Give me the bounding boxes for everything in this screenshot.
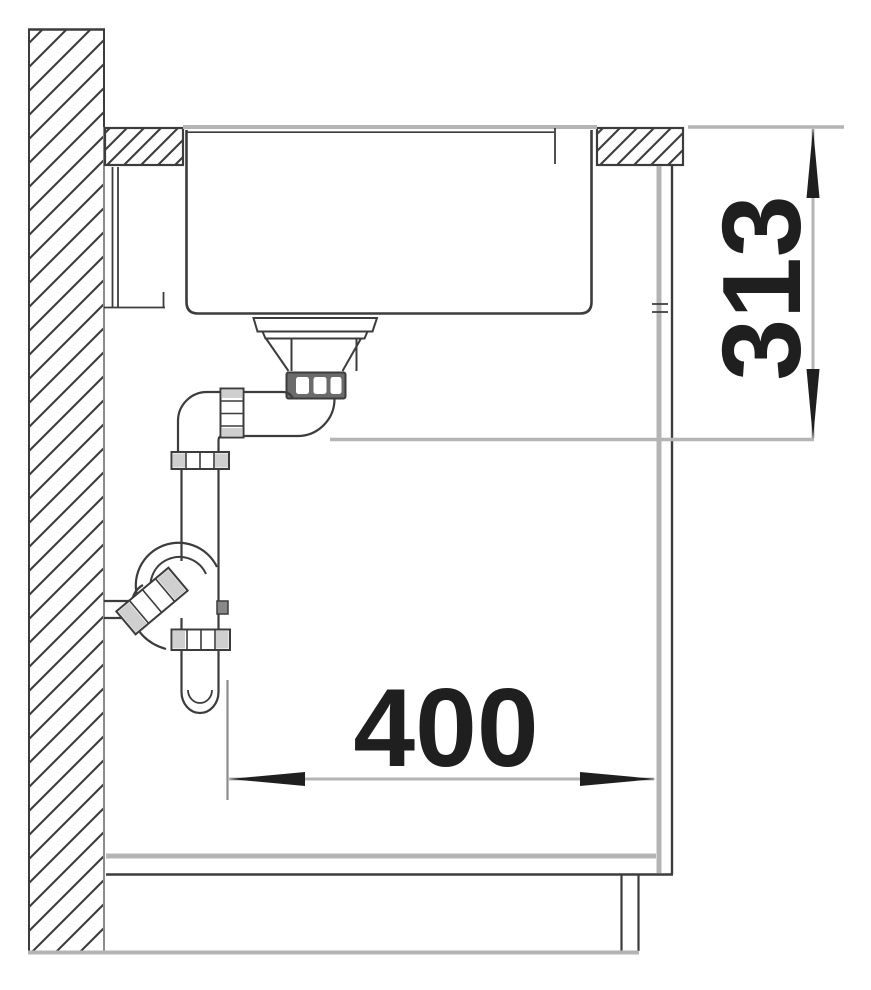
vertical-pipe-lower-nut — [172, 630, 231, 651]
dimension-height-label: 313 — [700, 195, 824, 380]
dimension-height: 313 — [330, 127, 844, 440]
countertop-left-section — [105, 128, 183, 165]
wall-hatched — [28, 29, 105, 954]
dimension-width: 400 — [228, 666, 657, 800]
vertical-pipe-upper-nut — [172, 452, 230, 469]
drain-strainer — [254, 318, 378, 399]
cabinet-side-panel — [652, 166, 672, 874]
dimension-width-label: 400 — [353, 666, 538, 790]
cabinet — [28, 166, 673, 953]
arrow-left-icon — [229, 772, 305, 786]
countertop — [105, 127, 683, 165]
horizontal-pipe-nut — [221, 389, 244, 438]
back-rail — [104, 167, 165, 308]
pipe-clip — [217, 601, 228, 614]
cabinet-bottom-panel — [106, 856, 673, 875]
countertop-right-section — [597, 128, 683, 165]
drain-tailpipe-elbow — [172, 389, 335, 631]
siphon-trap — [104, 543, 230, 713]
page: 313 400 — [0, 0, 871, 990]
sink-bowl — [187, 130, 592, 314]
cabinet-plinth — [622, 874, 639, 951]
arrow-up-icon — [807, 128, 820, 198]
installation-drawing: 313 400 — [0, 0, 871, 990]
strainer-nut — [287, 373, 346, 399]
arrow-right-icon — [580, 772, 656, 786]
